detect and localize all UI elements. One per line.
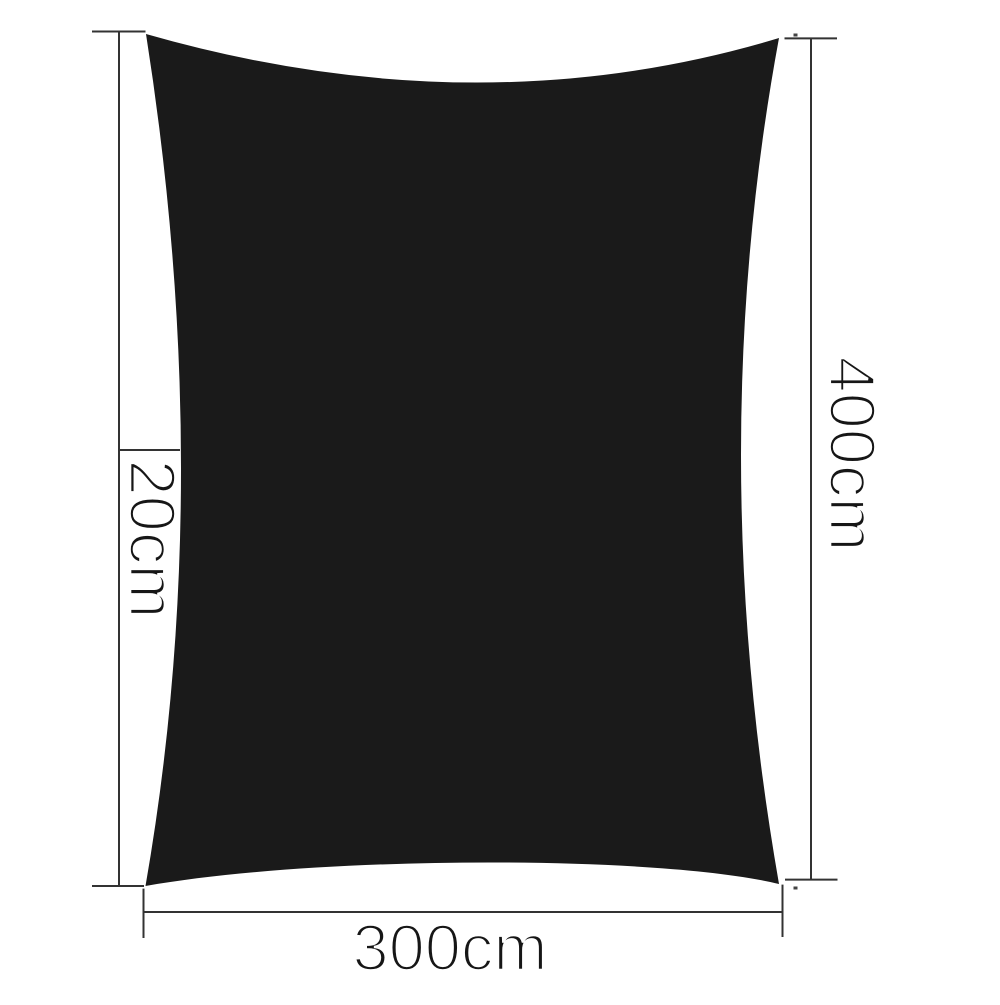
svg-text:20cm: 20cm (116, 460, 189, 619)
svg-text:300cm: 300cm (352, 911, 547, 984)
svg-text:400cm: 400cm (816, 356, 889, 551)
